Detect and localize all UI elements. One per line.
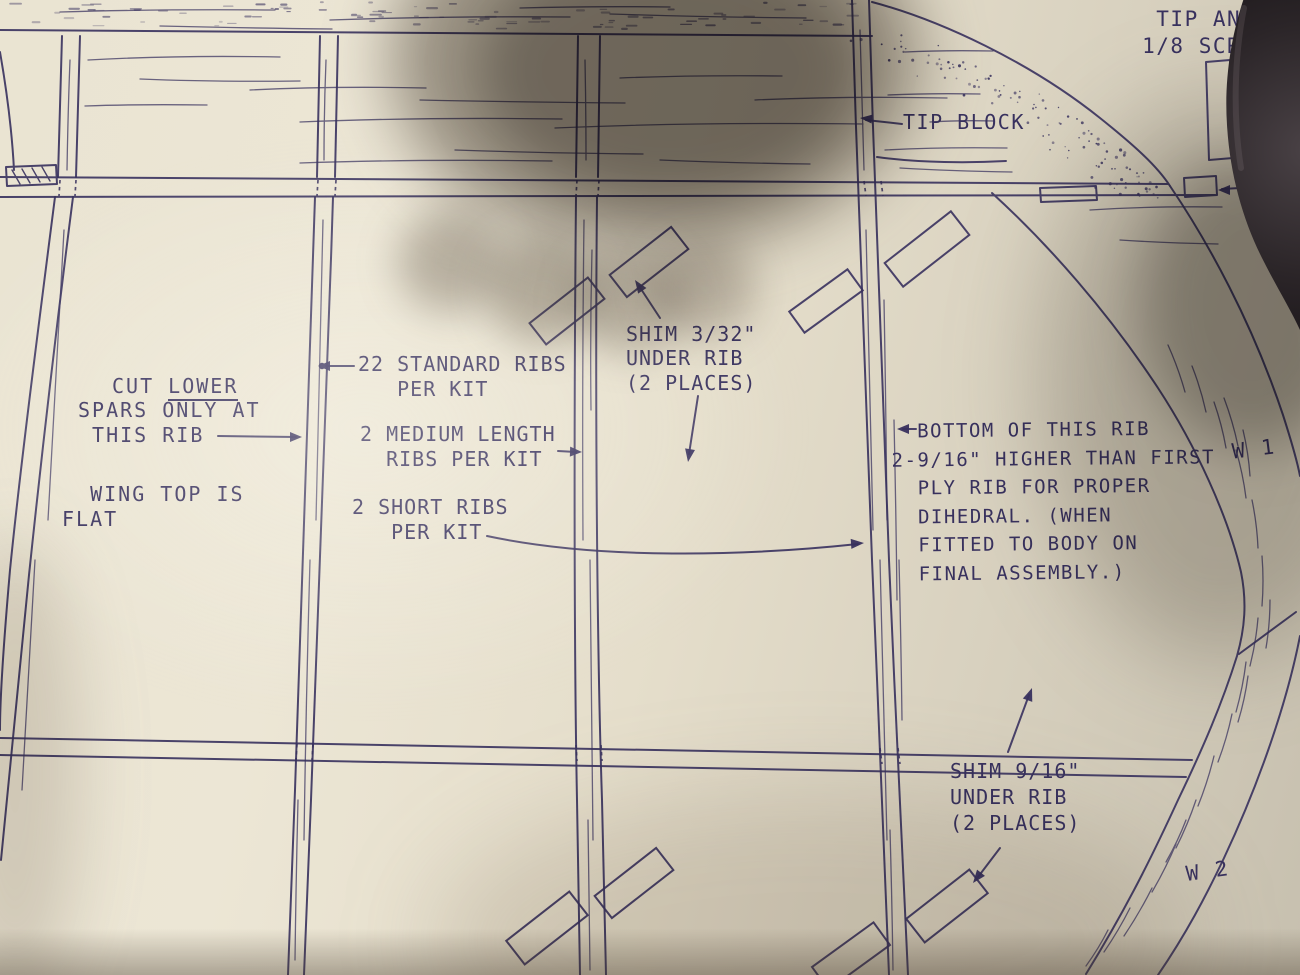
trailing-edge-top-line — [0, 738, 1192, 760]
tip-angle-gauge — [1206, 60, 1233, 160]
note-cut-lower-spars: CUT LOWER SPARS ONLY AT THIS RIB — [78, 374, 261, 447]
tip-spar-block — [1040, 186, 1097, 202]
note-tip-angle: TIP ANGLE 1/8 SCRAP — [1128, 6, 1284, 61]
leading-edge-line — [0, 30, 872, 36]
cut-note-rest: SPARS ONLY AT THIS RIB — [78, 398, 261, 446]
note-shim-under-rib-bottom: SHIM 9/16" UNDER RIB (2 PLACES) — [950, 758, 1080, 836]
sheeting-speckle — [10, 2, 858, 29]
hidden-edge-dashes — [59, 180, 900, 764]
note-medium-ribs: 2 MEDIUM LENGTH RIBS PER KIT — [360, 422, 556, 472]
cut-note-underlined-word: LOWER — [168, 374, 238, 401]
note-shim-under-rib-top: SHIM 3/32" UNDER RIB (2 PLACES) — [626, 322, 756, 395]
cut-note-word: CUT — [112, 374, 168, 398]
scrap-block — [1184, 176, 1217, 197]
rib-1 — [0, 36, 80, 860]
tip-outer-curve-bottom — [1158, 636, 1300, 975]
left-edge-curve — [0, 52, 14, 170]
spar-top-line — [0, 177, 1168, 184]
wing-plan-photo: TIP ANGLE 1/8 SCRAP TIP BLOCK SHIM 3/32"… — [0, 0, 1300, 975]
rib-3 — [575, 36, 606, 975]
note-tip-block: TIP BLOCK — [903, 110, 1025, 135]
spar-bottom-line — [0, 195, 1215, 197]
label-rib-w1: W 1 — [1231, 433, 1278, 464]
note-wing-top-flat: WING TOP IS FLAT — [62, 482, 245, 532]
rib-2 — [288, 36, 338, 975]
note-dihedral: BOTTOM OF THIS RIB 2-9/16" HIGHER THAN F… — [891, 414, 1216, 588]
note-short-ribs: 2 SHORT RIBS PER KIT — [352, 495, 509, 545]
note-standard-ribs: 22 STANDARD RIBS PER KIT — [358, 352, 567, 402]
